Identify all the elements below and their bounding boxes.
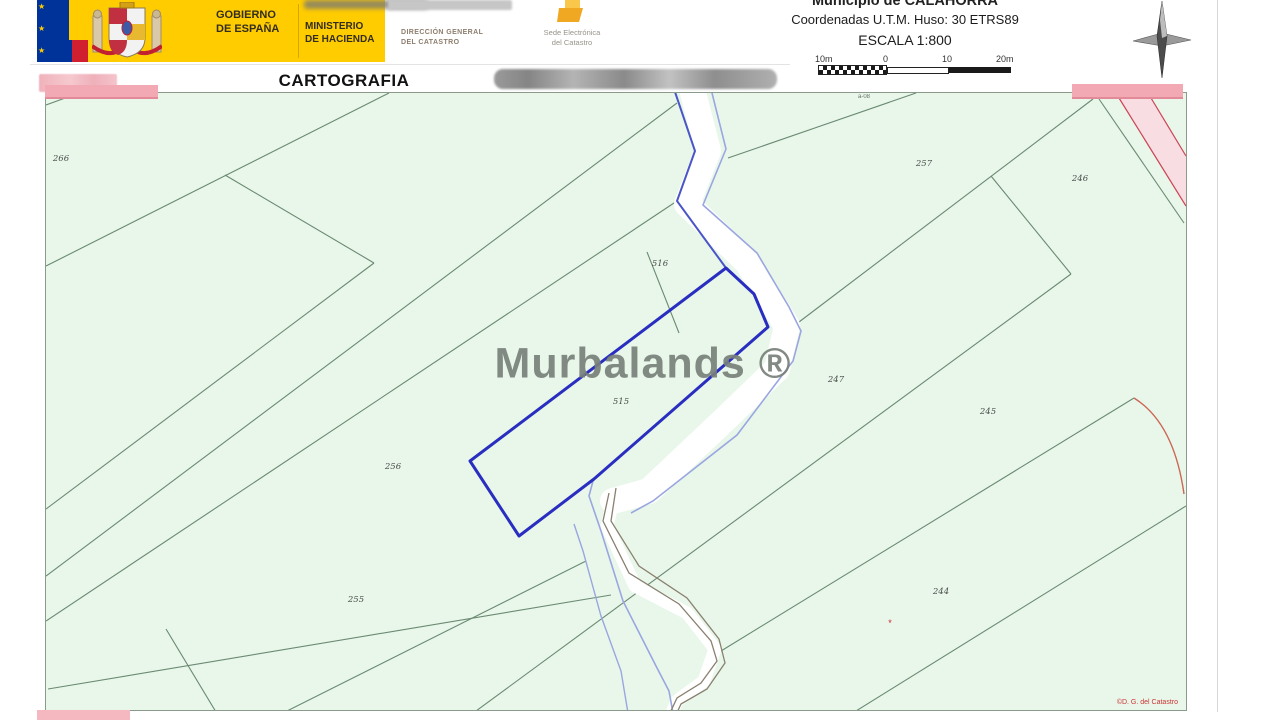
catastro-copyright: ©D. G. del Catastro bbox=[1117, 699, 1178, 706]
parcel-label-516: 516 bbox=[652, 259, 668, 269]
ministerio-label: MINISTERIO DE HACIENDA bbox=[305, 20, 374, 46]
parcel-label-266: 266 bbox=[53, 154, 69, 164]
redacted-text-bar bbox=[388, 0, 512, 10]
scale-tick-label: 20m bbox=[996, 54, 1014, 64]
spain-eu-flag: ★ ★ ★ bbox=[37, 0, 88, 62]
scale-label: ESCALA 1:800 bbox=[750, 32, 1060, 48]
ministry-banner: GOBIERNO DE ESPAÑA MINISTERIO DE HACIEND… bbox=[88, 0, 385, 62]
red-map-marker: * bbox=[888, 618, 892, 628]
parcel-label-255: 255 bbox=[348, 595, 364, 605]
scale-tick-label: 10 bbox=[942, 54, 952, 64]
direccion-general-catastro-label: DIRECCIÓN GENERAL DEL CATASTRO bbox=[401, 28, 483, 48]
cadastral-map: 266516257246515247256245255244 Murbaland… bbox=[45, 92, 1187, 711]
flag-yellow-bar bbox=[69, 0, 88, 40]
scale-tick-label: 0 bbox=[883, 54, 888, 64]
parcel-label-257: 257 bbox=[916, 159, 932, 169]
flag-star-icon: ★ bbox=[38, 46, 45, 55]
sede-electronica-logo-icon bbox=[557, 0, 589, 24]
flag-red-square bbox=[72, 40, 88, 62]
redacted-area-top-left bbox=[45, 85, 158, 99]
edge-parcel-label: a-08 bbox=[858, 94, 870, 100]
government-logo: ★ ★ ★ GOBIERNO DE ESPAÑA MINISTERIO bbox=[37, 0, 385, 62]
header-separator bbox=[30, 64, 790, 65]
gobierno-label: GOBIERNO DE ESPAÑA bbox=[216, 8, 279, 36]
redacted-area-bottom-left bbox=[37, 710, 130, 720]
cadastral-map-page: { "header": { "gobierno": { "l1": "GOBIE… bbox=[0, 0, 1280, 720]
road-edge-curve bbox=[1134, 398, 1184, 494]
parcel-label-515: 515 bbox=[613, 397, 629, 407]
scale-tick-label: 10m bbox=[815, 54, 833, 64]
flag-star-icon: ★ bbox=[38, 24, 45, 33]
coordinates-label: Coordenadas U.T.M. Huso: 30 ETRS89 bbox=[750, 12, 1060, 27]
flag-star-icon: ★ bbox=[38, 2, 45, 11]
road-corridor bbox=[1119, 98, 1186, 494]
redacted-area-top-right bbox=[1072, 84, 1183, 99]
parcel-label-244: 244 bbox=[933, 587, 949, 597]
sede-electronica-label: Sede Electrónica del Catastro bbox=[522, 28, 622, 48]
watermark: Murbalands ® bbox=[495, 340, 792, 389]
parcel-label-245: 245 bbox=[980, 407, 996, 417]
parcel-label-246: 246 bbox=[1072, 174, 1088, 184]
parcel-label-256: 256 bbox=[385, 462, 401, 472]
redacted-reference-gray bbox=[494, 69, 777, 89]
page-edge-line bbox=[1217, 0, 1218, 712]
municipio-label: Municipio de CALAHORRA bbox=[750, 0, 1060, 9]
parcel-label-247: 247 bbox=[828, 375, 844, 385]
spain-coat-of-arms-icon bbox=[92, 2, 162, 60]
stream-corridor bbox=[574, 93, 801, 710]
banner-divider bbox=[298, 4, 299, 58]
